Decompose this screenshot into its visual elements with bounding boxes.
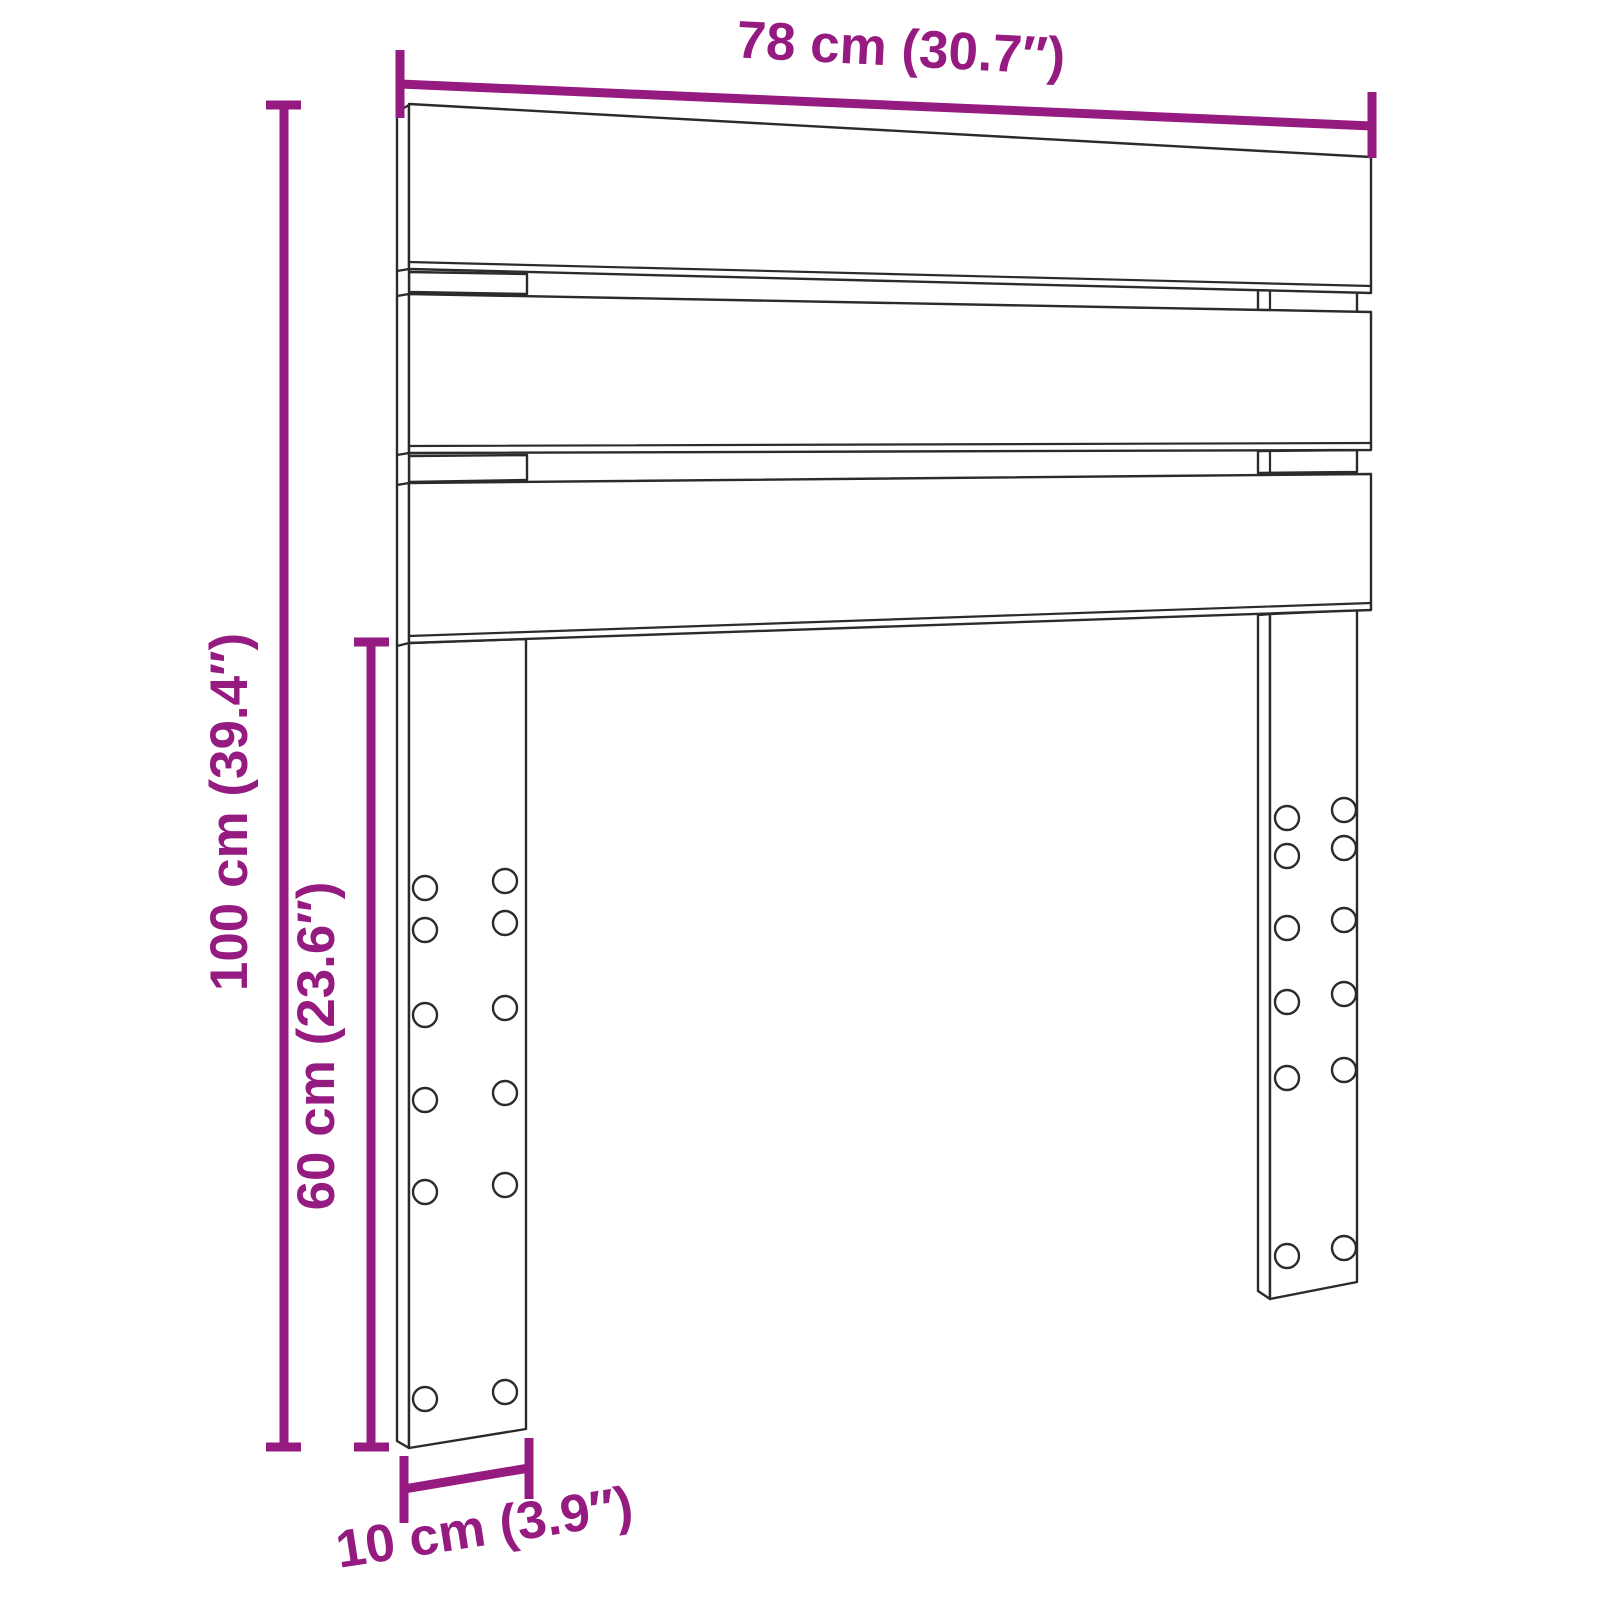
- dimension-height: 100 cm (39.4″): [200, 105, 301, 1447]
- headboard-slats: [409, 104, 1371, 643]
- left-leg-front-face: [409, 639, 526, 1448]
- right-leg-side-face: [1258, 614, 1270, 1299]
- dimension-width-label: 78 cm (30.7″): [735, 10, 1066, 86]
- mounting-hole: [493, 911, 517, 935]
- mounting-hole: [1275, 990, 1299, 1014]
- mounting-hole: [1332, 1058, 1356, 1082]
- headboard-drawing: [397, 104, 1371, 1448]
- dimension-leg-width-label: 10 cm (3.9″): [332, 1476, 637, 1580]
- dimension-line: [404, 1468, 529, 1489]
- left-post-gap-segment-2: [409, 455, 527, 482]
- mounting-hole: [1275, 806, 1299, 830]
- headboard-dimension-diagram: 78 cm (30.7″) 100 cm (39.4″) 60 cm (23.6…: [0, 0, 1600, 1600]
- mounting-hole: [413, 1088, 437, 1112]
- mounting-hole: [1275, 1066, 1299, 1090]
- dimension-leg-height: 60 cm (23.6″): [287, 642, 389, 1447]
- mounting-hole: [413, 918, 437, 942]
- mounting-hole: [493, 1081, 517, 1105]
- right-leg: [1258, 610, 1357, 1299]
- dimension-leg-width: 10 cm (3.9″): [332, 1438, 637, 1580]
- mounting-hole: [493, 1380, 517, 1404]
- mounting-hole: [413, 1180, 437, 1204]
- mounting-hole: [1275, 844, 1299, 868]
- mounting-hole: [1332, 908, 1356, 932]
- mounting-hole: [413, 1003, 437, 1027]
- mounting-hole: [493, 1173, 517, 1197]
- mounting-hole: [413, 876, 437, 900]
- left-side-panel: [397, 105, 409, 1448]
- mounting-hole: [493, 869, 517, 893]
- dimension-height-label: 100 cm (39.4″): [200, 633, 259, 991]
- mounting-hole: [1332, 982, 1356, 1006]
- slat-bottom: [409, 474, 1371, 643]
- right-post-gap-segment-2: [1258, 450, 1357, 473]
- dimension-leg-height-label: 60 cm (23.6″): [287, 882, 346, 1211]
- slat-middle: [409, 294, 1371, 453]
- left-post-gap-segment-1: [409, 272, 527, 294]
- mounting-hole: [1332, 836, 1356, 860]
- mounting-hole: [493, 996, 517, 1020]
- right-leg-front-face: [1270, 610, 1357, 1299]
- left-side-face: [397, 105, 409, 1448]
- mounting-hole: [1332, 1236, 1356, 1260]
- mounting-hole: [1275, 1244, 1299, 1268]
- mounting-hole: [1275, 916, 1299, 940]
- dimension-diagram-canvas: 78 cm (30.7″) 100 cm (39.4″) 60 cm (23.6…: [0, 0, 1600, 1600]
- left-leg: [409, 639, 526, 1448]
- mounting-hole: [413, 1387, 437, 1411]
- mounting-hole: [1332, 798, 1356, 822]
